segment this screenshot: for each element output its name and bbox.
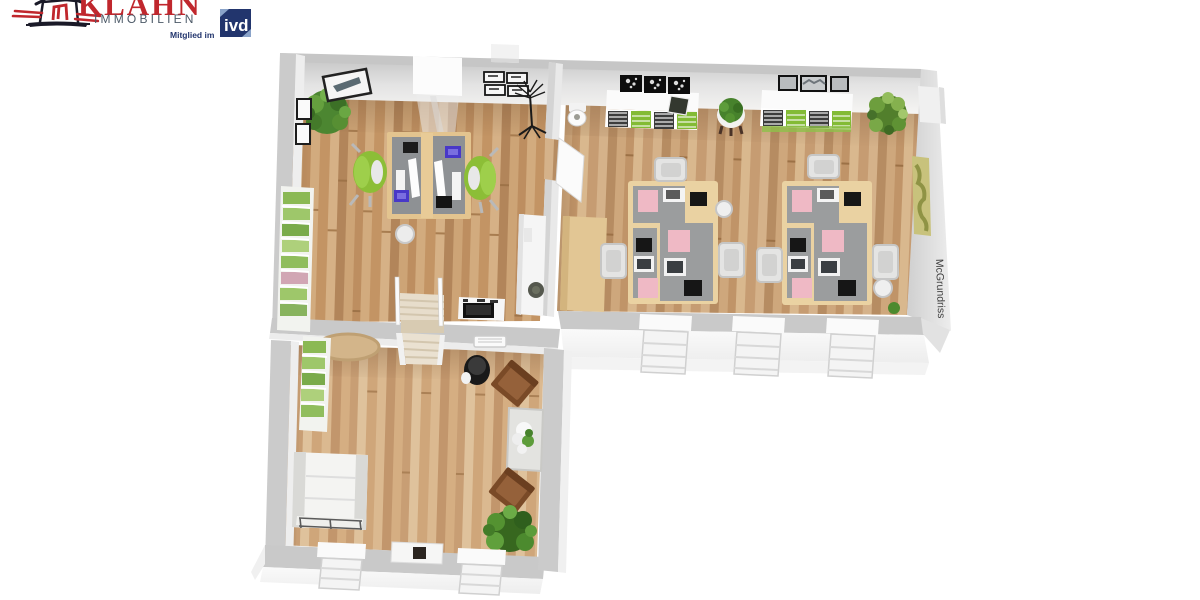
svg-text:McGrundriss: McGrundriss [933, 259, 947, 319]
svg-text:ivd: ivd [224, 16, 249, 35]
svg-text:IMMOBILIEN: IMMOBILIEN [94, 12, 197, 26]
svg-text:Mitglied im: Mitglied im [170, 30, 215, 40]
